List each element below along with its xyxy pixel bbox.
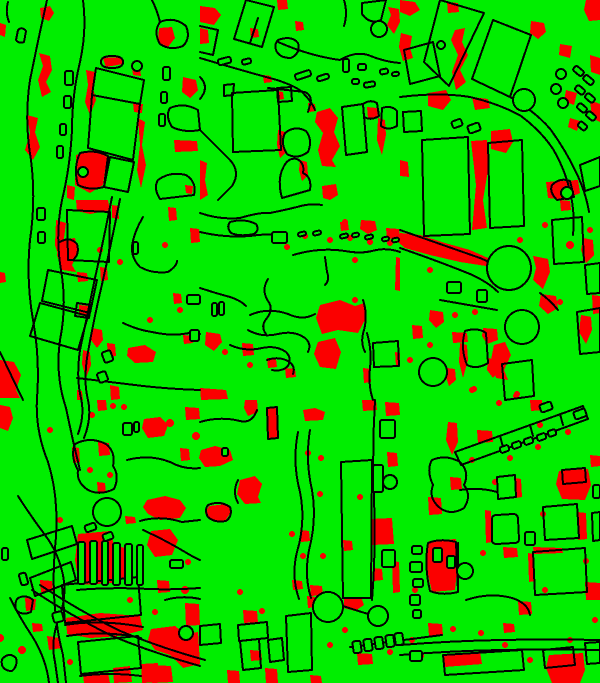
object-outline-rect: [137, 545, 143, 585]
object-outline-rect: [159, 114, 165, 126]
object-outline-rect: [190, 330, 199, 341]
object-outline-rect: [97, 371, 109, 383]
object-outline-rect: [313, 230, 322, 236]
error-speckle: [57, 517, 63, 523]
object-outline-rect: [37, 208, 45, 220]
error-speckle: [67, 659, 73, 665]
error-speckle: [535, 444, 541, 450]
error-speckle: [387, 649, 393, 655]
error-speckle: [300, 553, 306, 559]
object-outline-circle: [437, 41, 445, 49]
error-region: [592, 295, 600, 314]
object-outline-rect: [477, 290, 487, 302]
error-speckle: [147, 317, 153, 323]
error-speckle: [18, 646, 26, 654]
error-region: [243, 610, 258, 623]
error-speckle: [342, 627, 348, 633]
error-region: [185, 603, 200, 626]
object-outline-rect: [133, 242, 138, 254]
error-region: [97, 400, 107, 411]
error-speckle: [166, 419, 174, 427]
error-speckle: [327, 237, 333, 243]
error-speckle: [177, 307, 183, 313]
error-region: [560, 200, 571, 211]
object-outline-circle: [383, 475, 397, 489]
object-outline-rect: [547, 429, 557, 437]
error-speckle: [320, 553, 326, 559]
error-speckle: [478, 630, 484, 636]
error-region: [168, 207, 177, 221]
object-outline-circle: [179, 626, 193, 640]
error-speckle: [284, 244, 290, 250]
object-outline-rect: [447, 556, 455, 568]
error-region: [316, 300, 366, 334]
object-outline-circle: [457, 563, 473, 579]
object-outline-rect: [447, 282, 461, 293]
error-speckle: [352, 297, 358, 303]
error-speckle: [542, 587, 548, 593]
error-speckle: [342, 219, 348, 225]
error-speckle: [496, 400, 502, 406]
object-outline-rect: [364, 81, 376, 88]
error-speckle: [587, 227, 593, 233]
error-speckle: [514, 391, 520, 397]
error-region: [157, 580, 170, 593]
object-outline-rect: [392, 71, 400, 76]
error-region: [412, 325, 423, 339]
error-speckle: [566, 241, 574, 249]
error-region: [485, 510, 492, 543]
error-speckle: [152, 609, 158, 615]
error-speckle: [450, 626, 456, 632]
error-speckle: [317, 491, 323, 497]
object-outline-circle: [551, 84, 561, 94]
error-region: [503, 623, 515, 633]
object-outline-circle: [487, 246, 531, 290]
error-region: [190, 228, 200, 243]
object-outline-rect: [125, 544, 132, 585]
object-outline-rect: [380, 68, 389, 74]
object-outline-rect: [382, 550, 395, 567]
error-speckle: [107, 472, 113, 478]
error-region: [185, 407, 200, 420]
error-speckle: [407, 357, 413, 363]
object-outline-rect: [134, 422, 139, 432]
error-region: [292, 580, 303, 590]
error-region: [67, 185, 75, 200]
error-region: [428, 623, 443, 636]
object-outline-rect: [90, 541, 97, 584]
error-speckle: [87, 467, 93, 473]
error-region: [503, 547, 518, 558]
error-region: [452, 332, 468, 343]
object-outline-rect: [60, 124, 66, 135]
error-speckle: [127, 597, 133, 603]
object-outline-rect: [212, 303, 217, 316]
error-speckle: [237, 589, 243, 595]
object-outline-rect: [242, 58, 252, 65]
object-outline-rect: [412, 546, 422, 554]
object-outline-rect: [161, 92, 167, 103]
object-outline-circle: [558, 98, 568, 108]
error-speckle: [192, 432, 200, 440]
object-outline-rect: [38, 232, 45, 243]
object-outline-rect: [187, 295, 200, 304]
error-region: [151, 665, 173, 683]
object-outline-circle: [132, 61, 142, 71]
error-region: [268, 408, 277, 438]
classification-map-viewport: [0, 0, 600, 683]
error-speckle: [222, 349, 228, 355]
error-region: [125, 516, 136, 524]
error-region: [590, 55, 600, 75]
error-speckle: [352, 257, 358, 263]
error-speckle: [427, 342, 433, 348]
error-speckle: [469, 387, 475, 393]
object-outline-circle: [561, 187, 573, 199]
object-outline-rect: [413, 610, 421, 618]
error-speckle: [47, 427, 53, 433]
error-region: [400, 160, 409, 177]
object-outline-rect: [163, 67, 170, 80]
object-outline-rect: [222, 448, 228, 456]
object-outline-rect: [385, 635, 395, 648]
object-outline-rect: [52, 611, 64, 623]
object-outline-rect: [382, 236, 390, 241]
error-speckle: [480, 550, 486, 556]
error-region: [295, 21, 304, 31]
error-region: [0, 23, 6, 37]
error-speckle: [592, 617, 598, 623]
object-outline-circle: [368, 606, 388, 626]
object-outline-rect: [363, 639, 373, 652]
error-speckle: [289, 531, 295, 537]
object-outline-rect: [374, 637, 384, 650]
object-outline-rect: [410, 651, 422, 661]
object-outline-rect: [65, 71, 73, 85]
object-outline-circle: [556, 69, 566, 79]
object-outline-rect: [113, 543, 120, 585]
error-speckle: [117, 259, 123, 265]
object-outline-rect: [373, 465, 383, 492]
object-outline-rect: [272, 232, 287, 243]
error-region: [185, 185, 193, 194]
object-outline-rect: [433, 548, 442, 562]
error-region: [180, 448, 190, 461]
error-region: [174, 140, 198, 152]
error-speckle: [527, 657, 533, 663]
error-region: [450, 477, 462, 490]
classification-map-canvas: [0, 0, 600, 683]
error-speckle: [110, 403, 116, 409]
error-region: [590, 455, 600, 467]
object-outline-rect: [394, 633, 404, 646]
error-region: [173, 293, 182, 304]
object-outline-rect: [78, 542, 85, 584]
error-speckle: [162, 242, 168, 248]
object-outline-rect: [410, 595, 420, 605]
object-outline-circle: [419, 358, 447, 386]
error-region: [32, 623, 43, 632]
error-speckle: [121, 404, 127, 410]
object-outline-rect: [340, 233, 349, 239]
object-outline-rect: [413, 579, 423, 587]
error-speckle: [557, 299, 563, 305]
error-region: [387, 452, 398, 467]
object-outline-circle: [93, 498, 121, 526]
error-region: [265, 668, 278, 683]
error-speckle: [452, 312, 458, 318]
error-speckle: [517, 237, 523, 243]
object-outline-rect: [352, 641, 362, 654]
error-region: [227, 670, 240, 683]
error-speckle: [357, 494, 363, 500]
error-speckle: [247, 362, 253, 368]
error-speckle: [318, 455, 324, 461]
object-outline-circle: [513, 89, 535, 111]
error-speckle: [185, 559, 191, 565]
error-region: [343, 540, 353, 551]
error-speckle: [507, 455, 513, 461]
object-outline-rect: [343, 59, 349, 72]
object-outline-rect: [365, 234, 374, 240]
object-outline-rect: [2, 548, 8, 560]
object-outline-circle: [313, 592, 343, 622]
object-outline-circle: [78, 167, 88, 177]
object-outline-rect: [352, 79, 359, 84]
object-outline-rect: [380, 420, 395, 438]
object-outline-rect: [298, 231, 307, 237]
error-region: [385, 402, 400, 416]
error-region: [200, 28, 209, 44]
object-outline-circle: [371, 21, 387, 37]
object-outline-rect: [102, 541, 108, 585]
object-outline-rect: [358, 64, 366, 70]
object-outline-rect: [170, 560, 183, 568]
object-outline-rect: [525, 532, 535, 545]
error-speckle: [259, 608, 265, 614]
error-speckle: [472, 309, 478, 315]
error-region: [357, 653, 373, 665]
object-outline-rect: [123, 423, 132, 435]
object-outline-rect: [593, 485, 600, 498]
object-outline-rect: [352, 232, 360, 237]
error-speckle: [327, 642, 333, 648]
object-outline-rect: [392, 237, 400, 242]
object-outline-rect: [410, 562, 422, 572]
error-speckle: [542, 222, 548, 228]
object-outline-rect: [57, 146, 63, 158]
error-region: [310, 675, 322, 683]
error-region: [110, 385, 120, 400]
object-outline-circle: [505, 310, 539, 344]
object-outline-rect: [219, 302, 224, 315]
error-region: [428, 497, 442, 515]
error-speckle: [502, 642, 508, 648]
error-speckle: [565, 429, 571, 435]
error-region: [277, 0, 288, 10]
error-speckle: [427, 267, 433, 273]
object-outline-rect: [64, 96, 71, 108]
